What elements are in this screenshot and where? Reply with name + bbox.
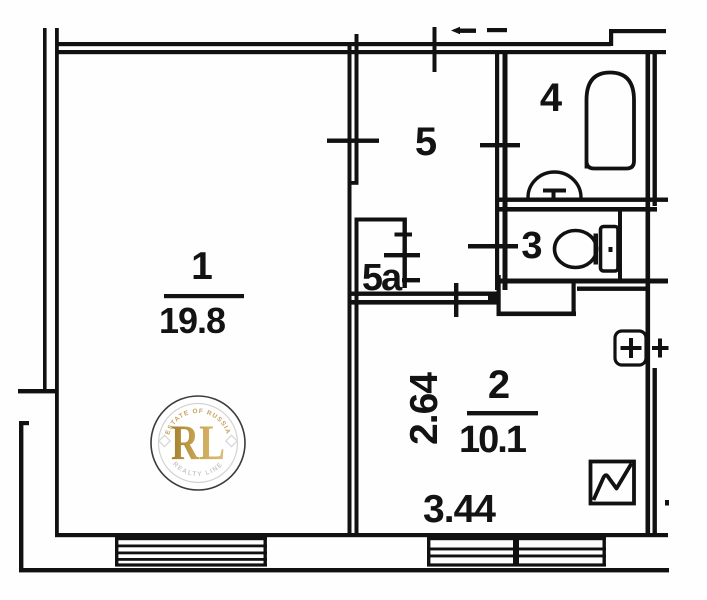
svg-text:10.1: 10.1 — [459, 419, 527, 461]
svg-text:1: 1 — [191, 245, 213, 288]
svg-text:3: 3 — [521, 225, 542, 267]
svg-text:5a: 5a — [362, 257, 403, 299]
svg-text:19.8: 19.8 — [159, 300, 225, 341]
svg-text:5: 5 — [415, 120, 437, 164]
svg-text:2: 2 — [488, 363, 510, 407]
svg-text:2.64: 2.64 — [403, 372, 446, 445]
svg-text:4: 4 — [540, 76, 563, 120]
svg-text:RL: RL — [171, 414, 225, 470]
svg-text:3.44: 3.44 — [423, 488, 496, 531]
